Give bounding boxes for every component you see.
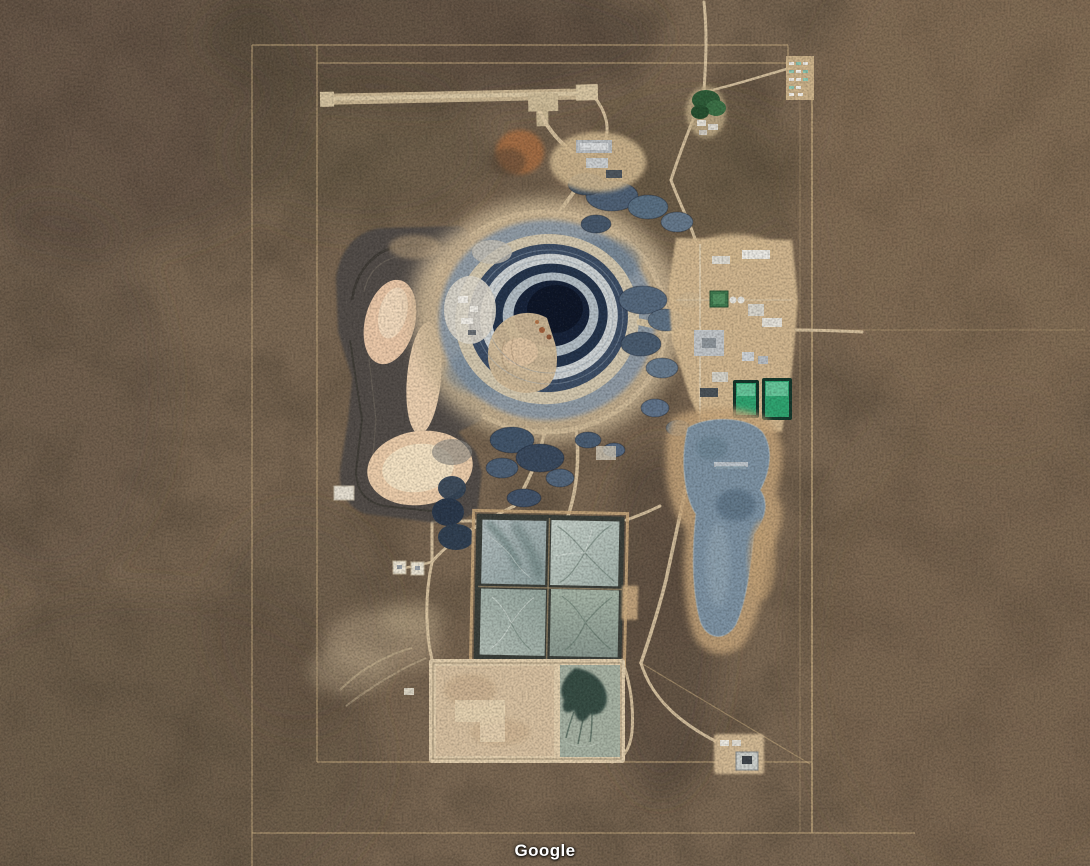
satellite-map-canvas[interactable]: Google bbox=[0, 0, 1090, 866]
satellite-imagery[interactable] bbox=[0, 0, 1090, 866]
image-grain bbox=[0, 0, 1090, 866]
google-watermark[interactable]: Google bbox=[515, 841, 576, 861]
